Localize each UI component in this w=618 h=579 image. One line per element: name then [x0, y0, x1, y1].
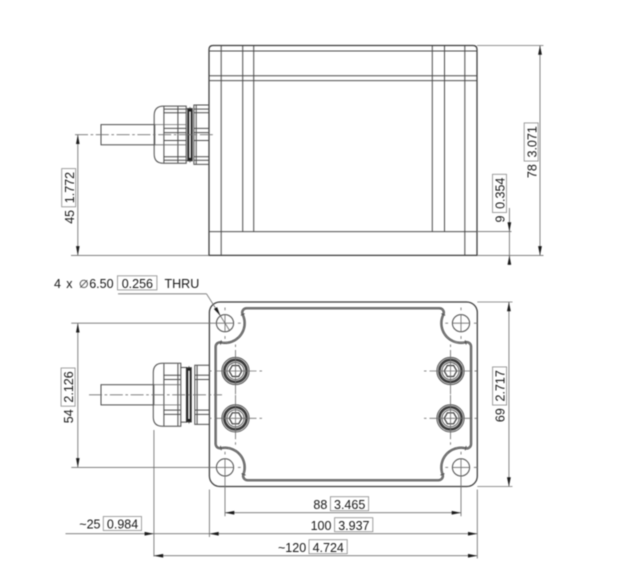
svg-text:~25: ~25	[79, 518, 100, 532]
svg-text:0.984: 0.984	[107, 518, 138, 532]
svg-text:3.071: 3.071	[525, 126, 539, 157]
svg-text:4: 4	[54, 277, 61, 291]
svg-text:2.126: 2.126	[62, 371, 76, 402]
svg-text:45: 45	[63, 210, 77, 224]
svg-text:1.772: 1.772	[63, 172, 77, 203]
svg-text:88: 88	[313, 498, 327, 512]
svg-text:0.354: 0.354	[494, 178, 508, 209]
svg-text:54: 54	[62, 409, 76, 423]
svg-text:4.724: 4.724	[313, 541, 344, 555]
svg-text:~120: ~120	[278, 541, 306, 555]
svg-text:9: 9	[494, 216, 508, 223]
svg-text:THRU: THRU	[165, 277, 200, 291]
svg-text:x: x	[66, 277, 73, 291]
svg-text:3.937: 3.937	[338, 519, 369, 533]
svg-text:69: 69	[494, 408, 508, 422]
svg-text:6.50: 6.50	[89, 277, 113, 291]
svg-text:78: 78	[525, 164, 539, 178]
svg-text:2.717: 2.717	[494, 370, 508, 401]
svg-text:3.465: 3.465	[334, 498, 365, 512]
svg-text:0.256: 0.256	[122, 277, 153, 291]
svg-text:100: 100	[311, 519, 332, 533]
